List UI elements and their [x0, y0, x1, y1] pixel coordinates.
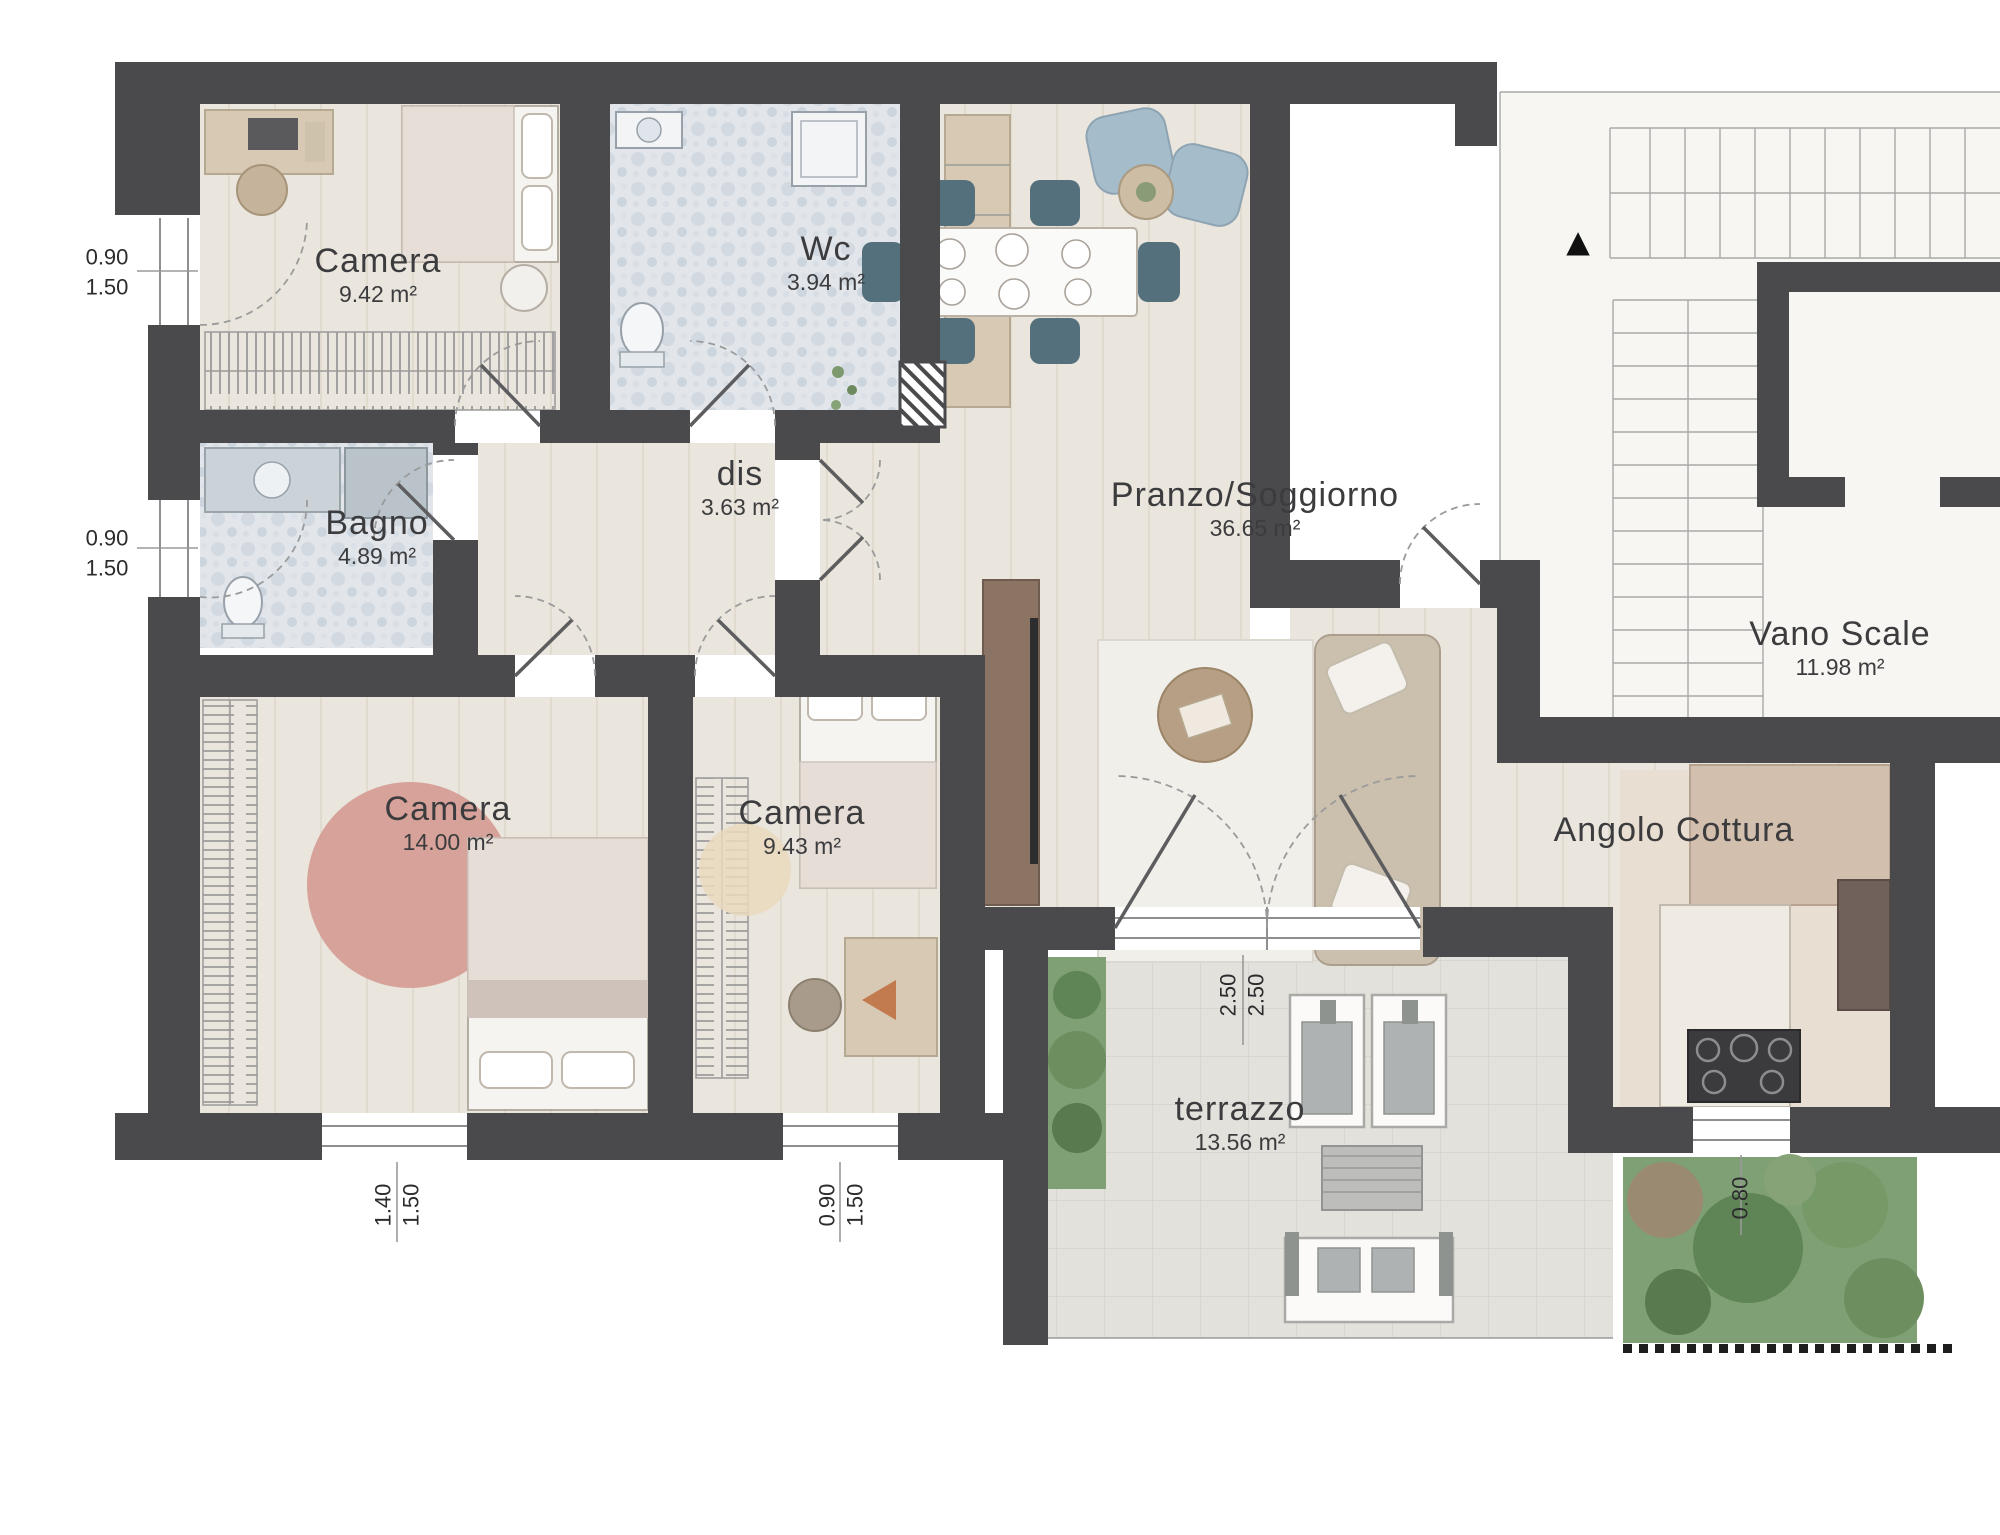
room-label-terrazzo: terrazzo 13.56 m² — [1175, 1090, 1306, 1156]
room-label-camera-nord: Camera 9.42 m² — [315, 242, 442, 308]
shower — [792, 112, 866, 186]
dim-left-window-bottom-b: 1.50 — [86, 554, 129, 583]
window-kitchen — [1693, 1107, 1790, 1153]
kitchen-tall-unit — [1838, 880, 1890, 1010]
pillow — [522, 186, 552, 250]
floor-plan-graphics — [0, 0, 2000, 1535]
elevator-wall — [1757, 262, 2000, 292]
garden-fence — [1623, 1344, 1952, 1353]
room-label-camera-ovest: Camera 14.00 m² — [385, 790, 512, 856]
dim-camera-small-window-b: 1.50 — [841, 1184, 870, 1227]
laptop — [248, 118, 298, 150]
elevator-wall — [1940, 477, 2000, 507]
dim-camera-large-window-b: 1.50 — [397, 1184, 426, 1227]
dim-terrace-door-b: 2.50 — [1242, 974, 1271, 1017]
desk-chair — [789, 979, 841, 1031]
dining-chair — [1030, 180, 1080, 226]
window-camera-ovest — [322, 1113, 467, 1160]
round-table — [501, 265, 547, 311]
bed-throw — [468, 980, 648, 1018]
room-label-camera-sud: Camera 9.43 m² — [739, 794, 866, 860]
dining-chair — [1138, 242, 1180, 302]
dim-left-window-top-a: 0.90 — [86, 243, 129, 272]
basin — [254, 462, 290, 498]
door-entrance — [1400, 504, 1480, 584]
bed-blanket — [402, 106, 514, 262]
floor-plan: Camera 9.42 m² Wc 3.94 m² dis 3.63 m² Ba… — [0, 0, 2000, 1535]
terrace-bench — [1285, 1238, 1453, 1322]
room-label-wc: Wc 3.94 m² — [787, 230, 865, 296]
pillow — [562, 1052, 634, 1088]
dining-chair — [1030, 318, 1080, 364]
dining-chair — [862, 242, 904, 302]
cooktop — [1688, 1030, 1800, 1102]
room-label-pranzo-soggiorno: Pranzo/Soggiorno 36.65 m² — [1111, 476, 1399, 542]
window-camera-sud — [783, 1113, 898, 1160]
room-label-dis: dis 3.63 m² — [701, 455, 779, 521]
toilet — [621, 303, 663, 357]
room-label-bagno: Bagno 4.89 m² — [325, 504, 428, 570]
pillow — [480, 1052, 552, 1088]
dim-left-window-top-b: 1.50 — [86, 273, 129, 302]
elevator-wall — [1757, 262, 1789, 507]
hatched-pier — [900, 362, 945, 427]
dim-left-window-bottom-a: 0.90 — [86, 524, 129, 553]
elevator-wall — [1757, 477, 1845, 507]
dim-kitchen-window-a: 0.80 — [1726, 1177, 1755, 1220]
room-label-vano-scale: Vano Scale 11.98 m² — [1749, 615, 1930, 681]
room-label-angolo-cottura: Angolo Cottura — [1554, 811, 1795, 849]
pillow — [522, 114, 552, 178]
dim-camera-small-window-a: 0.90 — [813, 1184, 842, 1227]
desk-chair — [237, 165, 287, 215]
dim-terrace-door-a: 2.50 — [1214, 974, 1243, 1017]
tv-screen — [1030, 618, 1038, 864]
stairs-direction-arrow-icon: ▲ — [1558, 221, 1598, 266]
dim-camera-large-window-a: 1.40 — [369, 1184, 398, 1227]
toilet-bagno — [224, 577, 262, 627]
